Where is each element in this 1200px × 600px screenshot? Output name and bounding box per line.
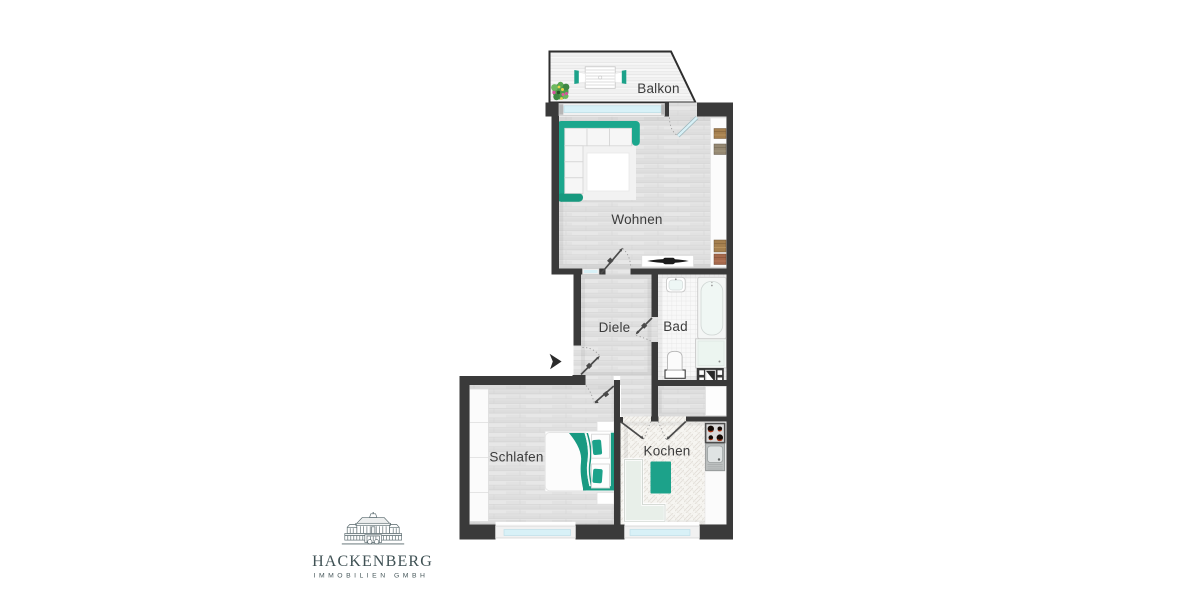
svg-text:HACKENBERG: HACKENBERG — [312, 553, 433, 570]
svg-text:Wohnen: Wohnen — [611, 212, 662, 227]
svg-text:IMMOBILIEN GMBH: IMMOBILIEN GMBH — [314, 573, 429, 580]
svg-text:Schlafen: Schlafen — [489, 450, 543, 465]
svg-text:Diele: Diele — [599, 320, 631, 335]
svg-text:Kochen: Kochen — [644, 444, 691, 459]
svg-text:Bad: Bad — [663, 319, 688, 334]
svg-text:Balkon: Balkon — [637, 81, 679, 96]
